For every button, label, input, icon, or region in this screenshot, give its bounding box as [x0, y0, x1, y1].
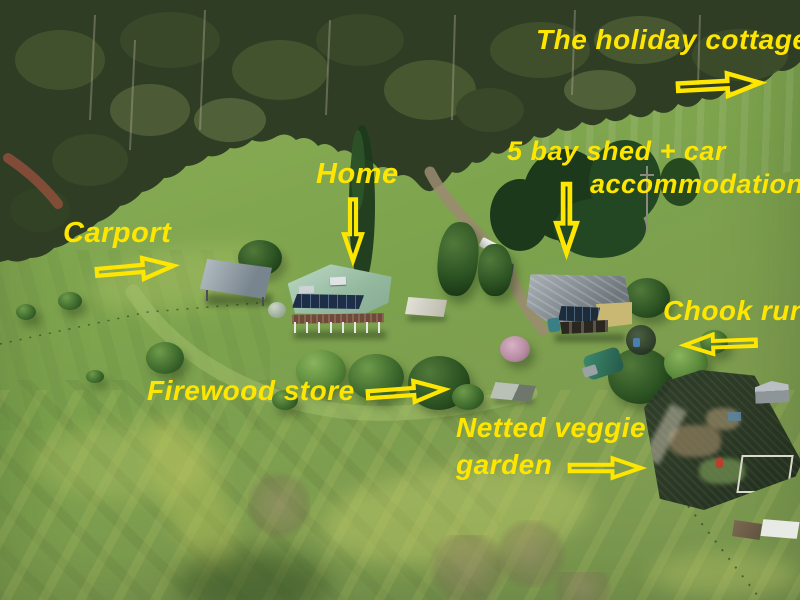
annotation-carport: Carport: [63, 219, 171, 248]
shed-bay-openings: [560, 320, 608, 334]
solar-panel-array: [292, 294, 364, 309]
arrow-right-icon: [556, 455, 656, 481]
annotation-veggie-line2: garden: [456, 451, 552, 479]
bush: [58, 292, 82, 310]
blue-tarp: [728, 412, 741, 421]
aerial-photo: The holiday cottage Home Carport 5 bay s…: [0, 0, 800, 600]
bare-tree: [545, 572, 620, 600]
blue-tarp: [547, 317, 561, 333]
flowering-tree: [500, 336, 530, 362]
fence-line: [0, 303, 258, 344]
roof-vent: [299, 286, 314, 294]
tree: [478, 244, 512, 296]
fence-line: [688, 506, 758, 596]
chook-run-enclosure: [626, 325, 656, 355]
annotation-home: Home: [316, 160, 399, 189]
bush: [16, 304, 36, 320]
shed-shadow: [555, 334, 625, 342]
shed-solar-panels: [558, 306, 600, 322]
carport-post: [262, 297, 264, 306]
solar-hot-water-unit: [330, 277, 346, 286]
arrow-down-icon: [340, 197, 366, 263]
water-tank: [268, 302, 286, 318]
bare-tree: [248, 470, 310, 540]
annotation-veggie-line1: Netted veggie: [456, 414, 646, 442]
pergola: [405, 297, 447, 317]
red-barrel: [716, 458, 723, 468]
carport-post: [206, 290, 208, 301]
annotation-chook-run: Chook run: [663, 297, 800, 325]
annotation-shed-line2: accommodation: [590, 171, 800, 198]
arrow-left-icon: [653, 329, 787, 360]
arrow-down-icon: [553, 172, 580, 265]
blue-barrel: [633, 338, 640, 347]
annotation-firewood-store: Firewood store: [147, 377, 355, 405]
annotation-shed-line1: 5 bay shed + car: [507, 138, 726, 165]
tree: [146, 342, 184, 374]
bush: [86, 370, 104, 383]
annotation-holiday-cottage: The holiday cottage: [536, 26, 800, 54]
deck-posts: [294, 322, 382, 333]
